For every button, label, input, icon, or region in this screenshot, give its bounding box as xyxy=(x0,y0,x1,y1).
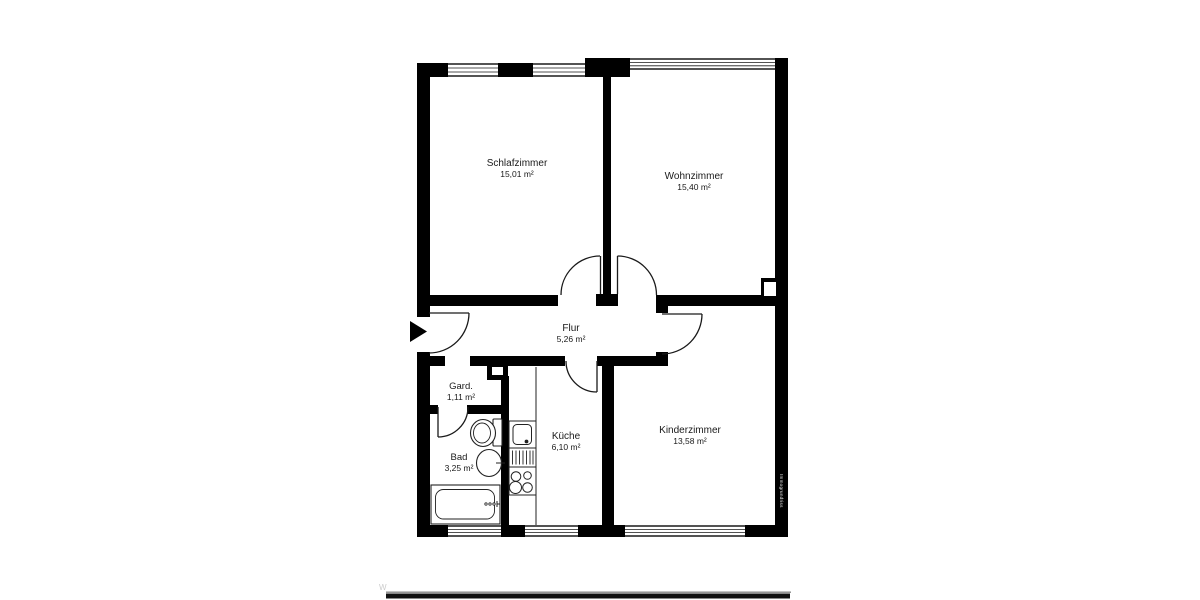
vertical-watermark: Immogrundriss xyxy=(777,474,786,514)
window xyxy=(448,63,498,77)
window xyxy=(625,525,745,537)
footer-bar xyxy=(386,592,791,599)
window xyxy=(525,525,578,537)
kitchen-unit xyxy=(509,367,536,525)
entrance-door xyxy=(429,313,469,353)
schlafzimmer-door xyxy=(561,256,601,295)
wohnzimmer-door xyxy=(618,256,657,295)
kueche-door xyxy=(566,361,597,392)
kinderzimmer-door xyxy=(662,314,702,354)
bathroom-fixtures xyxy=(431,419,505,524)
bathroom-sink xyxy=(477,450,506,477)
window xyxy=(448,525,501,537)
entrance-arrow-icon xyxy=(410,321,427,342)
floorplan-drawing xyxy=(0,0,1200,600)
interior-walls xyxy=(417,68,777,525)
floorplan-canvas: Schlafzimmer 15,01 m² Wohnzimmer 15,40 m… xyxy=(0,0,1200,600)
toilet xyxy=(471,419,503,447)
footer-corner-mark: W xyxy=(379,583,387,592)
stove xyxy=(509,467,536,495)
bad-door xyxy=(438,407,468,437)
wall-niche xyxy=(761,278,777,299)
bathtub xyxy=(431,485,500,524)
window xyxy=(533,63,585,77)
window xyxy=(630,58,775,70)
dishwasher xyxy=(509,448,536,467)
kitchen-sink xyxy=(509,421,536,448)
